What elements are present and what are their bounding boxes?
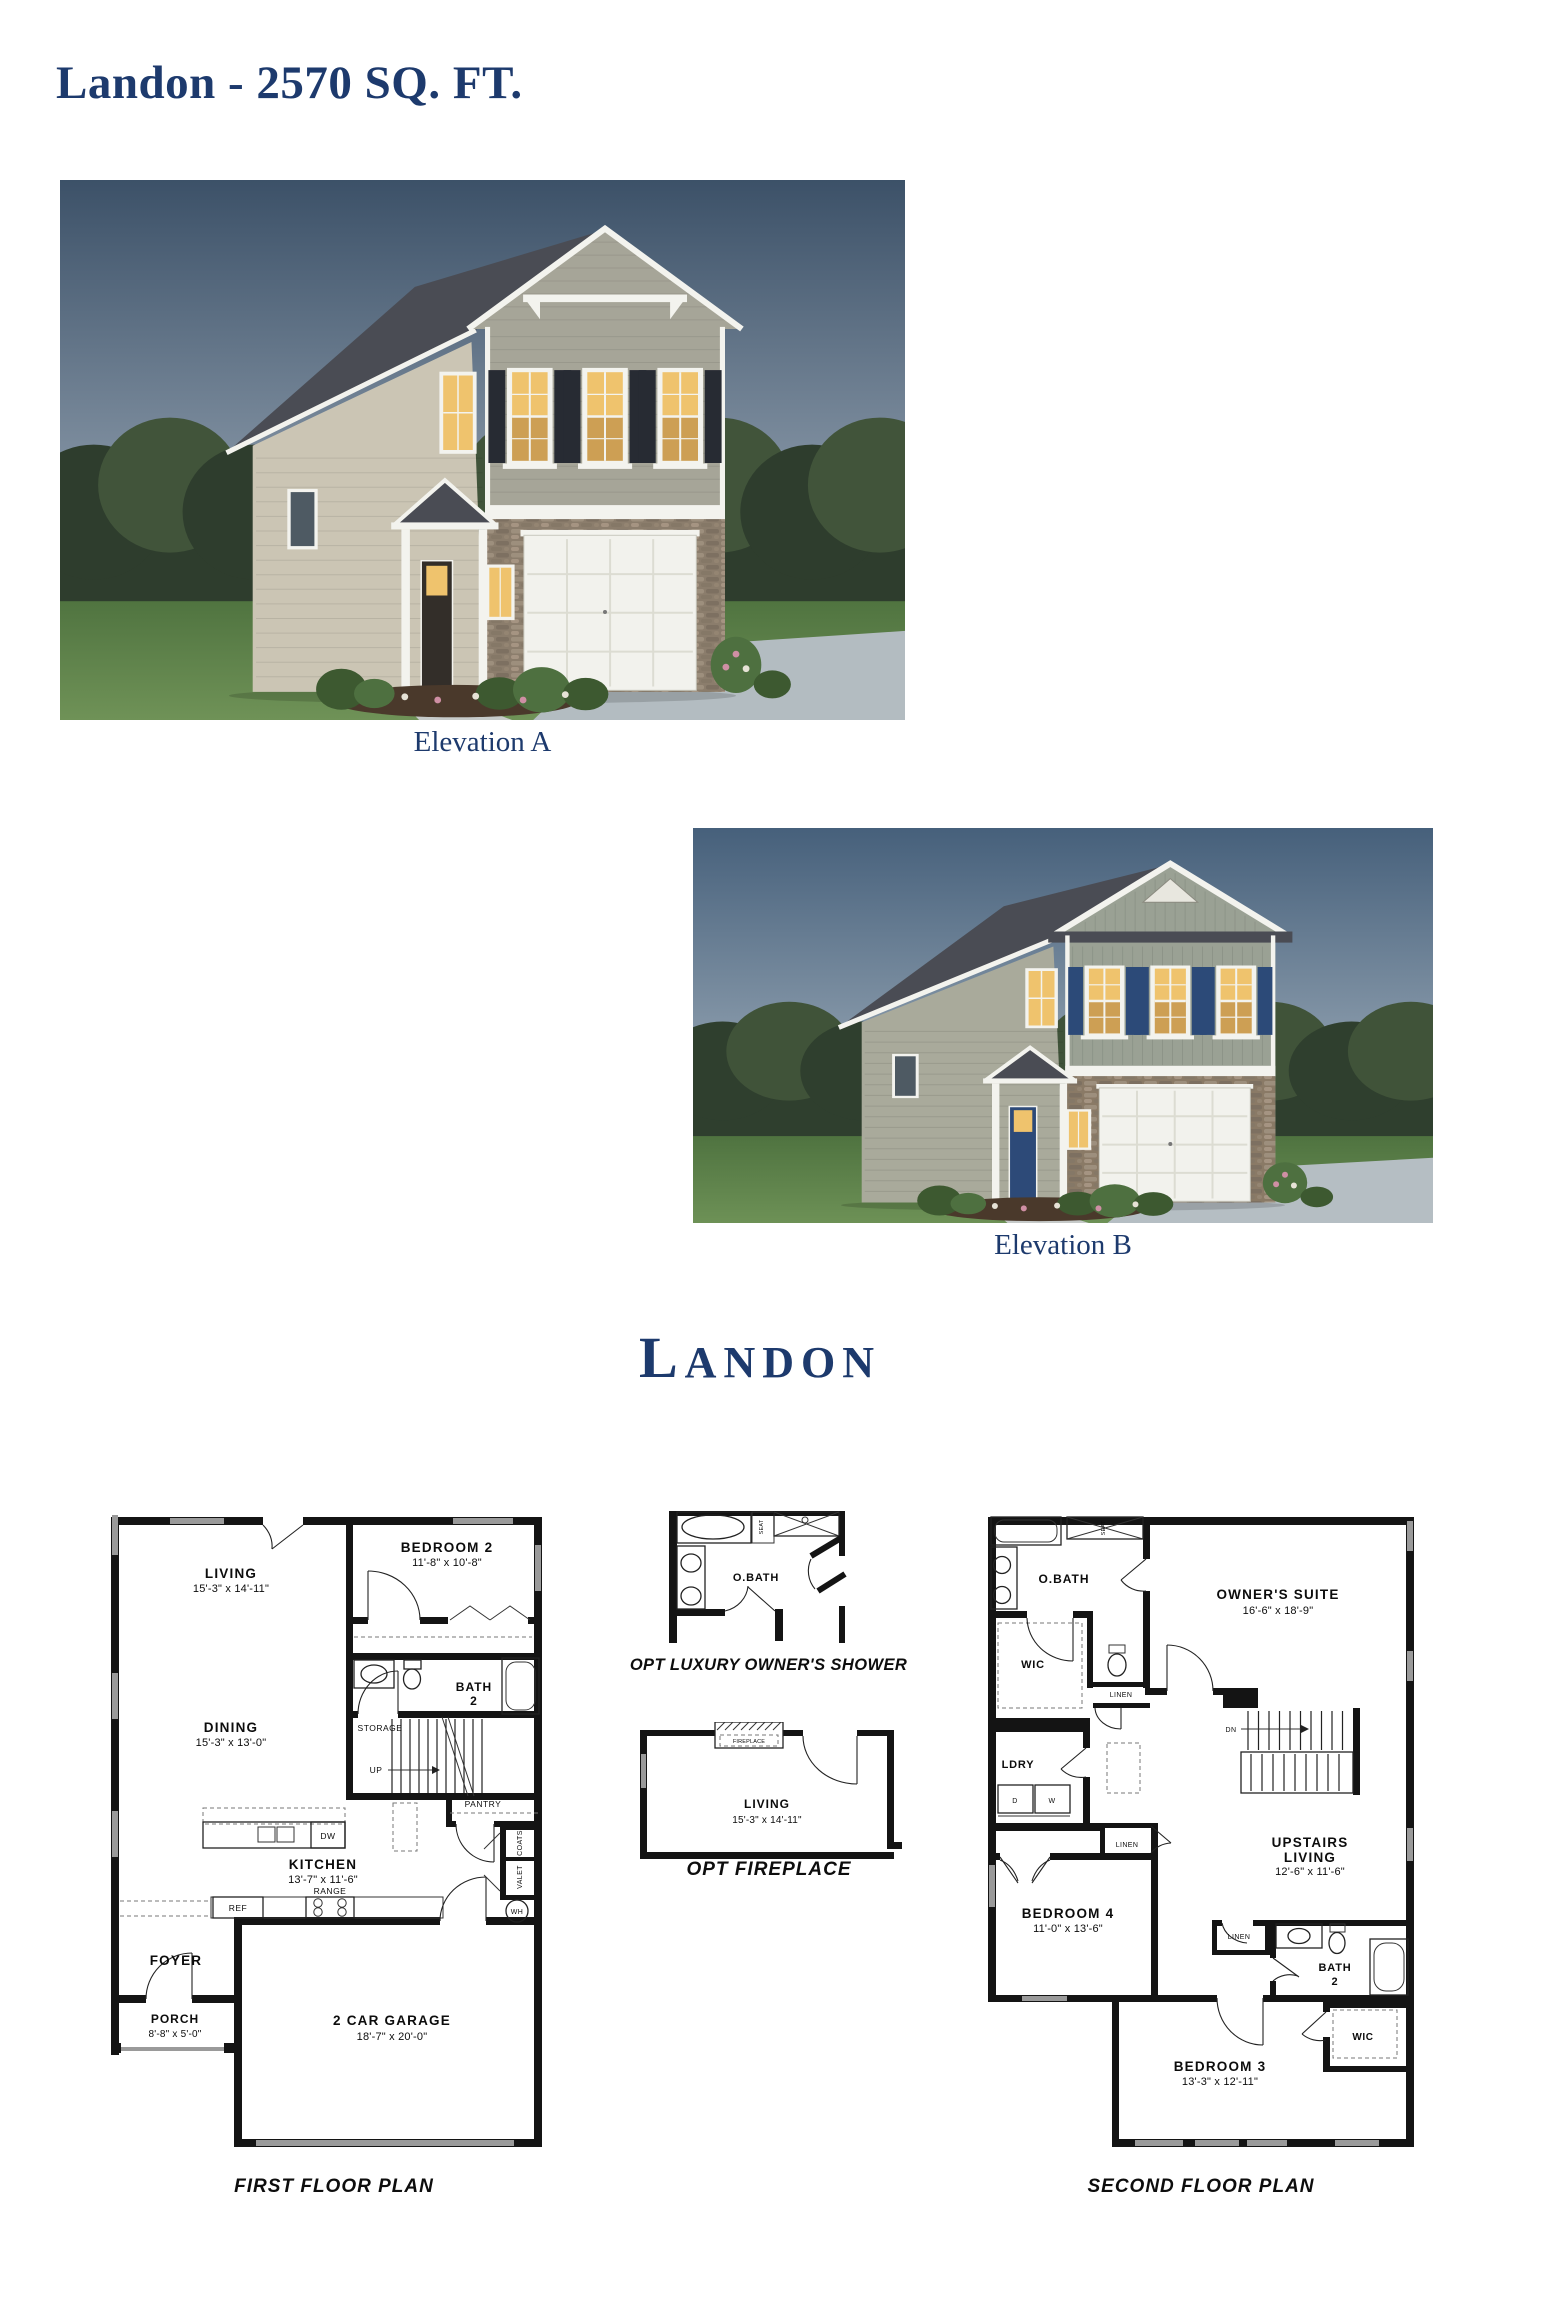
bath2-number: 2 (470, 1694, 478, 1708)
upper-window (639, 368, 722, 469)
dryer-label: D (1012, 1798, 1017, 1805)
kitchen-label: KITCHEN (289, 1857, 357, 1872)
shutter (705, 370, 722, 463)
second-floor-caption: SECOND FLOOR PLAN (985, 2176, 1417, 2198)
elevation-a-photo (60, 180, 905, 720)
porch-window (1066, 1109, 1091, 1150)
garage-door (521, 530, 700, 690)
shutter (564, 370, 581, 463)
bedroom2-dims: 11'-8" x 10'-8" (412, 1557, 482, 1569)
opt-owners-shower-caption: OPT LUXURY OWNER'S SHOWER (596, 1656, 941, 1675)
second-floor-fixtures (991, 1517, 1408, 2058)
upper-window (564, 368, 647, 469)
garage-door (1096, 1084, 1253, 1201)
page-title: Landon - 2570 SQ. FT. (56, 56, 523, 110)
shutter (639, 370, 656, 463)
house-rendering (60, 180, 905, 720)
fireplace-label: FIREPLACE (733, 1739, 765, 1745)
elevation-b-label: Elevation B (693, 1229, 1433, 1262)
garage-handle (603, 610, 607, 614)
side-lower-window (287, 489, 317, 550)
upper-window (488, 368, 571, 469)
upper-window (1134, 966, 1207, 1040)
garage-label: 2 CAR GARAGE (333, 2013, 451, 2028)
elevation-a-label: Elevation A (60, 726, 905, 759)
elevation-b-figure: Elevation B (693, 828, 1433, 1262)
porch-dims: 8'-8" x 5'-0" (149, 2029, 202, 2040)
valet-label: VALET (517, 1865, 524, 1889)
opt-fireplace-plan: FIREPLACE LIVING 15'-3" x 14'-11" (636, 1722, 902, 1864)
front-door (421, 561, 452, 692)
second-floor-labels: O.BATH OWNER'S SUITE 16'-6" x 18'-9" WIC… (1002, 1520, 1374, 2088)
shutter (488, 370, 505, 463)
ldry-label: LDRY (1002, 1759, 1035, 1771)
linen2-label: LINEN (1116, 1842, 1139, 1849)
elevation-b-photo (693, 828, 1433, 1223)
pantry-label: PANTRY (465, 1799, 502, 1809)
fireplace-option-door (803, 1736, 857, 1784)
kitchen-dims: 13'-7" x 11'-6" (288, 1874, 358, 1886)
bedroom4-dims: 11'-0" x 13'-6" (1033, 1923, 1103, 1935)
white-band (1065, 1066, 1275, 1077)
side-upper-window (1025, 968, 1058, 1028)
second-floor-plan: O.BATH OWNER'S SUITE 16'-6" x 18'-9" WIC… (985, 1513, 1417, 2158)
porch-label: PORCH (151, 2012, 199, 2026)
first-floor-labels: LIVING 15'-3" x 14'-11" BEDROOM 2 11'-8"… (149, 1540, 524, 2043)
wic1-label: WIC (1021, 1659, 1045, 1671)
second-floor-windows (989, 1521, 1413, 2146)
obath-option-label: O.BATH (733, 1572, 779, 1584)
brochure-page: Landon - 2570 SQ. FT. Elevation A Elevat… (0, 0, 1556, 2304)
bedroom2-label: BEDROOM 2 (401, 1540, 494, 1555)
bedroom3-dims: 13'-3" x 12'-11" (1182, 2076, 1258, 2088)
upstairs-living-dims: 12'-6" x 11'-6" (1275, 1866, 1345, 1878)
storage-label: STORAGE (358, 1723, 403, 1733)
living-dims: 15'-3" x 14'-11" (193, 1583, 269, 1595)
fireplace-living-label: LIVING (744, 1797, 790, 1811)
garage-dims: 18'-7" x 20'-0" (357, 2031, 428, 2043)
fireplace-fixture: FIREPLACE (715, 1722, 783, 1748)
upstairs-living-line2: LIVING (1284, 1850, 1336, 1865)
side-lower-window (892, 1054, 919, 1098)
upper-window (1068, 966, 1141, 1040)
obath-label: O.BATH (1038, 1572, 1089, 1586)
coats-label: COATS (517, 1830, 524, 1856)
dn-label: DN (1226, 1727, 1237, 1734)
elevation-a-figure: Elevation A (60, 180, 905, 759)
foyer-label: FOYER (150, 1953, 203, 1968)
fireplace-option-walls (640, 1730, 902, 1859)
opt-owners-shower-plan: O.BATH SEAT (612, 1511, 927, 1645)
dining-label: DINING (204, 1720, 258, 1735)
seat-2f-label: SEAT (1101, 1520, 1107, 1535)
bath2-2f-label: BATH (1319, 1962, 1352, 1974)
dw-label: DW (320, 1831, 335, 1841)
shutter (1068, 967, 1083, 1035)
up-label: UP (370, 1765, 383, 1775)
dining-dims: 15'-3" x 13'-0" (196, 1737, 267, 1749)
bedroom4-label: BEDROOM 4 (1022, 1906, 1115, 1921)
shutter (1200, 967, 1215, 1035)
opt-fireplace-caption: OPT FIREPLACE (636, 1859, 902, 1881)
owners-suite-dims: 16'-6" x 18'-9" (1243, 1605, 1314, 1617)
bath2-label: BATH (456, 1680, 492, 1694)
ref-label: REF (229, 1903, 248, 1913)
upper-window (1200, 966, 1272, 1040)
front-door (1009, 1107, 1036, 1203)
porch-window (486, 565, 515, 621)
living-label: LIVING (205, 1566, 257, 1581)
upstairs-living-line1: UPSTAIRS (1272, 1835, 1349, 1850)
garage-handle (1168, 1142, 1172, 1146)
shutter (1134, 967, 1149, 1035)
bedroom3-label: BEDROOM 3 (1174, 2059, 1267, 2074)
fireplace-living-dims: 15'-3" x 14'-11" (732, 1815, 802, 1826)
seat-label: SEAT (759, 1519, 765, 1534)
white-band (485, 505, 725, 520)
first-floor-plan: LIVING 15'-3" x 14'-11" BEDROOM 2 11'-8"… (108, 1513, 560, 2158)
house-rendering (693, 828, 1433, 1223)
fireplace-option-window (641, 1754, 646, 1788)
side-upper-window (439, 372, 476, 454)
plan-name-title: Landon (460, 1324, 1060, 1391)
wic2-label: WIC (1352, 2032, 1373, 2043)
range-label: RANGE (314, 1886, 347, 1896)
shutter (1258, 967, 1273, 1035)
wh-label: WH (511, 1909, 523, 1916)
linen3-label: LINEN (1228, 1934, 1251, 1941)
owners-suite-label: OWNER'S SUITE (1216, 1587, 1339, 1602)
linen1-label: LINEN (1110, 1692, 1133, 1699)
bath2-2f-number: 2 (1332, 1976, 1339, 1988)
first-floor-caption: FIRST FLOOR PLAN (108, 2176, 560, 2198)
washer-label: W (1048, 1798, 1055, 1805)
second-floor-walls (988, 1517, 1414, 2147)
